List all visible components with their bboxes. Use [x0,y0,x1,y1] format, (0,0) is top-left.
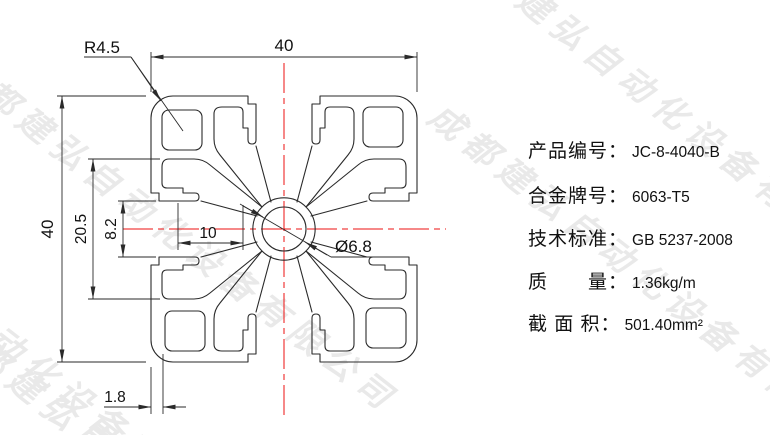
dim-slot-opening-label: 8.2 [103,218,120,240]
dim-left-height-label: 40 [38,220,57,239]
spec-label-mass: 质 量： [528,272,628,293]
spec-value-section-area: 501.40mm² [625,317,703,334]
spec-value-mass: 1.36kg/m [632,275,696,292]
spec-row-alloy: 合金牌号：6063-T5 [528,181,690,208]
dim-top-width-label: 40 [275,36,294,55]
drawing-sheet: 成都建弘自动化设备有限公司 成都建弘自动化设备有限公司 成都建弘自动化设备有限公… [0,0,770,435]
dim-wall-thickness-label: 1.8 [104,389,126,406]
spec-value-standard: GB 5237-2008 [632,232,733,249]
spec-label-section-area: 截 面 积： [528,314,621,335]
spec-value-alloy: 6063-T5 [632,189,690,206]
spec-row-standard: 技术标准：GB 5237-2008 [528,224,733,251]
spec-label-product-code: 产品编号： [528,141,628,162]
dim-center-hole-label: Ø6.8 [335,237,372,256]
spec-row-product-code: 产品编号：JC-8-4040-B [528,136,720,163]
spec-value-product-code: JC-8-4040-B [632,144,720,161]
dim-corner-radius-label: R4.5 [84,38,120,57]
spec-label-standard: 技术标准： [528,229,628,250]
dim-wall-thickness: 1.8 [104,354,186,414]
dim-web-offset-label: 10 [199,225,217,242]
dim-corner-radius: R4.5 [84,38,183,131]
profile-cross-section-drawing: 40 40 20.5 8.2 10 [0,0,515,435]
spec-row-mass: 质 量：1.36kg/m [528,267,696,294]
spec-row-section-area: 截 面 积：501.40mm² [528,309,703,336]
spec-label-alloy: 合金牌号： [528,186,628,207]
dim-pocket-span-label: 20.5 [73,214,90,244]
